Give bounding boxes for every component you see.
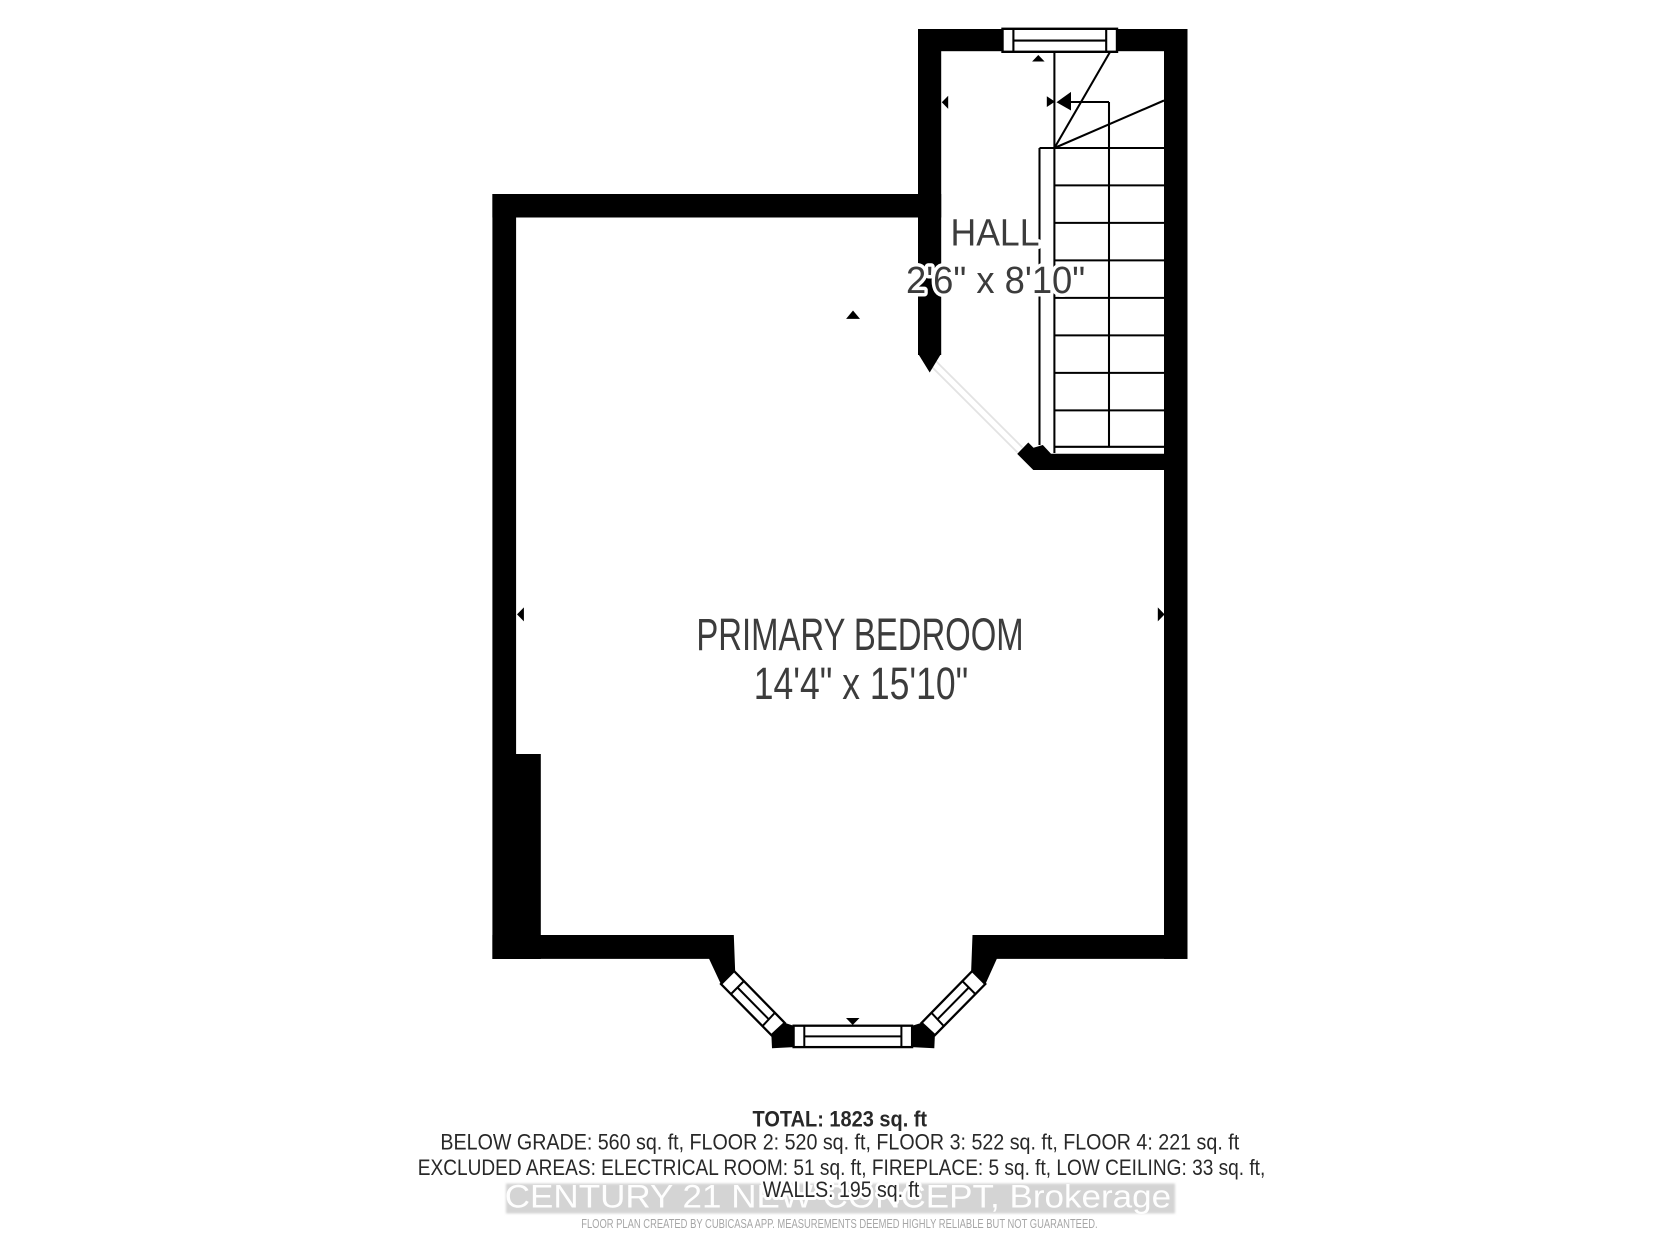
svg-text:14'4" x 15'10": 14'4" x 15'10" [754, 658, 968, 709]
svg-text:WALLS: 195 sq. ft: WALLS: 195 sq. ft [763, 1178, 920, 1203]
svg-text:BELOW GRADE: 560 sq. ft, FLOOR: BELOW GRADE: 560 sq. ft, FLOOR 2: 520 sq… [440, 1131, 1239, 1155]
svg-text:FLOOR PLAN CREATED BY CUBICASA: FLOOR PLAN CREATED BY CUBICASA APP. MEAS… [581, 1218, 1097, 1232]
svg-text:PRIMARY BEDROOM: PRIMARY BEDROOM [696, 610, 1023, 660]
svg-text:EXCLUDED AREAS: ELECTRICAL ROO: EXCLUDED AREAS: ELECTRICAL ROOM: 51 sq. … [418, 1156, 1266, 1181]
svg-text:HALL: HALL [951, 211, 1040, 253]
svg-text:2'6" x 8'10": 2'6" x 8'10" [906, 258, 1085, 301]
svg-text:TOTAL: 1823 sq. ft: TOTAL: 1823 sq. ft [753, 1107, 928, 1132]
